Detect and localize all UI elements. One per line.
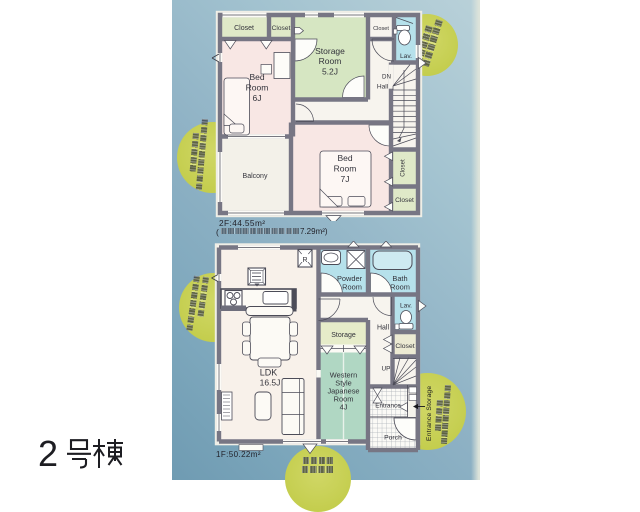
svg-text:Room: Room [390, 283, 410, 292]
svg-text:LDK: LDK [260, 368, 278, 378]
svg-text:6J: 6J [253, 93, 262, 103]
svg-text:Hall: Hall [377, 325, 390, 332]
svg-text:Lav.: Lav. [400, 53, 412, 60]
svg-text:Closet: Closet [373, 26, 389, 32]
svg-text:Closet: Closet [400, 159, 407, 177]
svg-text:Storage: Storage [315, 46, 345, 56]
svg-text:Entrance: Entrance [375, 403, 401, 410]
svg-text:Room: Room [334, 164, 357, 174]
svg-text:R: R [302, 257, 307, 264]
svg-text:4J: 4J [340, 403, 348, 412]
svg-text:DN: DN [382, 74, 391, 81]
svg-text:Balcony: Balcony [243, 173, 268, 180]
svg-text:Room: Room [342, 283, 362, 292]
svg-text:Closet: Closet [234, 25, 254, 32]
svg-text:Closet: Closet [395, 343, 414, 350]
svg-text:Closet: Closet [272, 25, 291, 32]
svg-text:Room: Room [246, 83, 269, 93]
svg-text:Hall: Hall [377, 84, 389, 91]
svg-text:Bed: Bed [337, 153, 352, 163]
svg-text:Bed: Bed [249, 72, 264, 82]
svg-text:Lav.: Lav. [400, 303, 412, 310]
svg-text:Storage: Storage [331, 332, 356, 339]
svg-text:7J: 7J [341, 174, 350, 184]
svg-text:Closet: Closet [395, 197, 414, 204]
svg-text:16.5J: 16.5J [260, 378, 281, 388]
svg-text:5.2J: 5.2J [322, 67, 338, 77]
svg-text:UP: UP [382, 366, 391, 373]
svg-text:Room: Room [319, 56, 342, 66]
svg-text:Porch: Porch [384, 435, 402, 442]
